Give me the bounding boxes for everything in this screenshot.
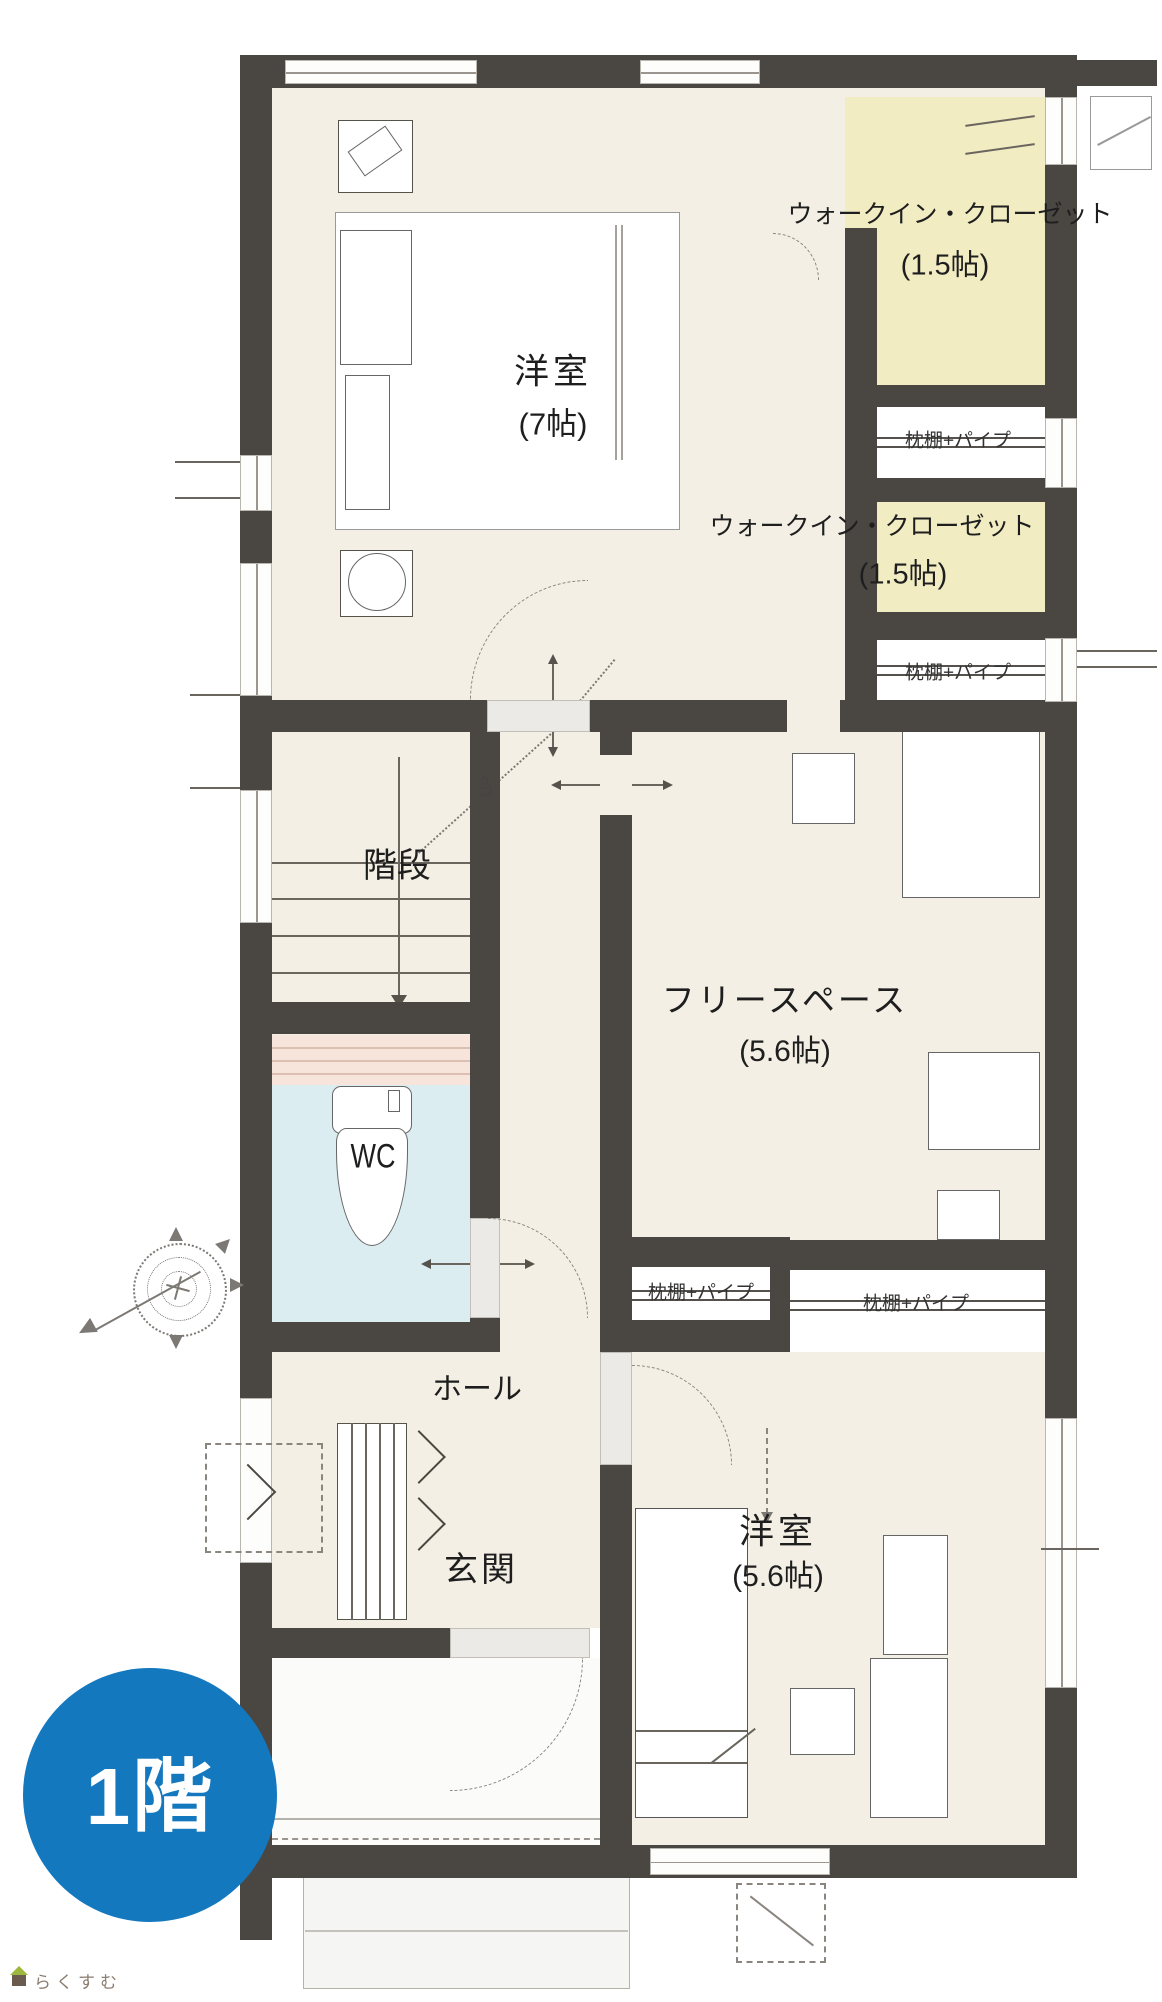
bed [635, 1508, 748, 1818]
room-label-bedroom56: 洋室 [739, 1515, 817, 1550]
wall-bedroom7-south-left [272, 700, 487, 732]
shelf-unit [902, 722, 1040, 898]
closet-shelf-label: 枕棚+パイプ [648, 1284, 754, 1303]
stool-circle [348, 553, 406, 611]
closet-shelf-label: 枕棚+パイプ [905, 432, 1011, 451]
wall-closet-mid [790, 1240, 1045, 1270]
side-table [792, 753, 855, 824]
wall-wic-internal [845, 612, 1045, 640]
arrow-right-icon [663, 780, 673, 790]
partition-line [615, 225, 617, 460]
room-label-bedroom7: 洋室 [514, 355, 592, 390]
wc-shelf-line [272, 1060, 470, 1062]
bed-line [636, 1762, 747, 1764]
opening-hall-freespace [600, 755, 632, 815]
room-size-bedroom7: (7帖) [519, 409, 588, 440]
window-tick [175, 461, 240, 463]
door-slab-bedroom56 [600, 1352, 632, 1465]
shoe-cabinet-line [351, 1423, 353, 1620]
wall-central-vertical [600, 732, 632, 1878]
window [1045, 418, 1077, 488]
house-icon [10, 1966, 28, 1975]
floor-badge-label: 1階 [86, 1757, 215, 1837]
room-size-wic-top: (1.5帖) [901, 252, 990, 281]
room-label-wic-mid: ウォークイン・クローゼット [709, 515, 1034, 540]
wc-shelf-line [272, 1073, 470, 1075]
arrow-left-icon [421, 1259, 431, 1269]
room-size-wic-mid: (1.5帖) [859, 561, 948, 590]
toilet-handle [388, 1090, 400, 1112]
porch [303, 1877, 630, 1989]
window [285, 60, 477, 84]
window [650, 1848, 830, 1875]
genkan-step-line [272, 1818, 600, 1820]
arrow-down-icon [548, 747, 558, 757]
window [1045, 97, 1077, 165]
shoe-cabinet-line [365, 1423, 367, 1620]
window [240, 455, 272, 511]
room-size-bedroom56: (5.6帖) [732, 1562, 824, 1592]
door-slab-entrance [450, 1628, 590, 1658]
porch-step-line [305, 1930, 628, 1932]
watermark-text: らくすむ [34, 1968, 122, 1993]
arrow-left-icon [551, 780, 561, 790]
window-tick [190, 694, 240, 696]
bed [345, 375, 390, 510]
stairs-up-label: UP [480, 776, 495, 797]
stair-step [272, 935, 470, 937]
genkan-threshold-dashed [272, 1838, 600, 1840]
wall-closet-mid [600, 1237, 790, 1267]
room-label-wc: WC [351, 1140, 396, 1175]
cabinet-small [937, 1190, 1000, 1240]
house-icon-body [12, 1975, 26, 1986]
wall-closet-mid [600, 1320, 790, 1352]
room-label-freespace: フリースペース [662, 984, 908, 1017]
wall-wic-internal [845, 478, 1045, 502]
room-label-stairs: 階段 [363, 849, 431, 883]
wall-wic-internal [845, 385, 1045, 407]
window [240, 790, 272, 923]
opening-wic-entry [787, 700, 840, 732]
room-label-genkan: 玄関 [444, 1553, 518, 1587]
room-label-wic-top: ウォークイン・クローゼット [787, 203, 1112, 228]
entry-arrow-dashed [766, 1428, 768, 1514]
watermark: らくすむ [10, 1966, 270, 1996]
cabinet [928, 1052, 1040, 1150]
toilet-tank [332, 1086, 412, 1134]
closet-shelf-label: 枕棚+パイプ [905, 664, 1011, 683]
window-tick [1077, 650, 1157, 652]
floor-plan: 洋室 (7帖) ウォークイン・クローゼット (1.5帖) ウォークイン・クローゼ… [0, 0, 1162, 2002]
bed-line [636, 1730, 747, 1732]
shelf-unit [870, 1658, 948, 1818]
window-tick [175, 497, 240, 499]
wall-top-right-ext [1077, 60, 1157, 86]
chair [790, 1688, 855, 1755]
wall-wc-south [240, 1322, 500, 1352]
shoe-cabinet-line [379, 1423, 381, 1620]
wall-closet-divider [770, 1240, 790, 1352]
window [1045, 638, 1077, 702]
window-tick [1041, 1548, 1099, 1550]
stair-step [272, 898, 470, 900]
exterior-unit-dashed [736, 1883, 826, 1963]
door-slab-bedroom7 [487, 700, 590, 732]
room-label-hall: ホール [432, 1375, 522, 1405]
wc-shelf-line [272, 1047, 470, 1049]
compass-rose-icon [70, 1220, 250, 1360]
window [640, 60, 760, 84]
bed [340, 230, 412, 365]
closet-shelf-label: 枕棚+パイプ [863, 1295, 969, 1314]
room-size-freespace: (5.6帖) [739, 1037, 831, 1067]
window-tick [190, 787, 240, 789]
window-tick [1077, 666, 1157, 668]
window [1045, 1418, 1077, 1688]
window [240, 563, 272, 696]
stair-step [272, 972, 470, 974]
partition-line [621, 225, 623, 460]
wall-genkan [240, 1628, 450, 1658]
wall-stair-south [240, 1002, 500, 1034]
desk [883, 1535, 948, 1655]
